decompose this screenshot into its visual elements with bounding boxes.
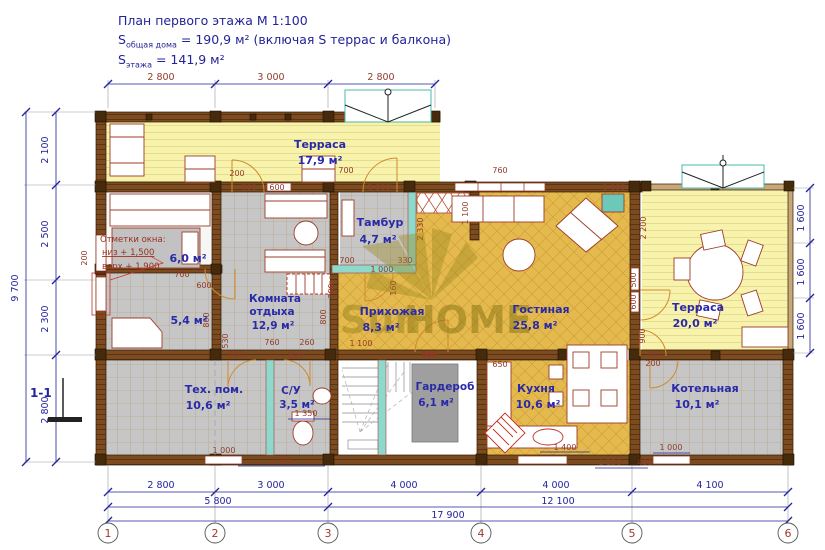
total-area-line: Sобщая дома = 190,9 м² (включая S террас… — [118, 31, 451, 52]
dim-1000-tech: 1 000 — [213, 446, 236, 455]
label-terrace-top: Терраса — [294, 138, 346, 151]
dim-left-3: 2 300 — [40, 305, 51, 332]
dim-bottom-3: 4 000 — [390, 480, 417, 491]
axis-label-2: 2 — [212, 527, 219, 540]
label-terrace-top-area: 17,9 м² — [298, 154, 343, 167]
dim-left-total: 9 700 — [10, 274, 21, 301]
dim-1900-wc: 1 900 — [270, 456, 293, 465]
dim-2000-living: 2 000 — [603, 183, 626, 192]
label-tambour-area: 4,7 м² — [359, 233, 396, 246]
plan-title: План первого этажа М 1:100 — [118, 12, 451, 31]
dim-bottom-5: 4 100 — [696, 480, 723, 491]
dim-bottom-1: 2 800 — [147, 480, 174, 491]
label-hallway-area: 8,3 м² — [362, 321, 399, 334]
title-block: План первого этажа М 1:100 Sобщая дома =… — [118, 12, 451, 72]
dim-top-2: 3 000 — [257, 72, 284, 83]
dim-700-tambour: 700 — [339, 256, 354, 265]
label-wardrobe-area: 6,1 м² — [418, 397, 454, 409]
dim-right-3: 1 600 — [796, 312, 807, 339]
axis-label-5: 5 — [629, 527, 636, 540]
dim-700-boiler: 700 — [646, 350, 661, 359]
dim-right-1: 1 600 — [796, 204, 807, 231]
label-lounge-1: Комната — [249, 293, 301, 305]
s-floor-prefix: S — [118, 52, 126, 67]
label-tech: Тех. пом. — [185, 383, 243, 396]
dim-1150: 1 150 — [599, 458, 622, 467]
label-wc-area: 3,5 м² — [279, 399, 315, 411]
window-note-line2: низ + 1,500 — [102, 248, 154, 258]
dim-530-lounge-left: 530 — [221, 333, 230, 348]
dim-bottom-2: 3 000 — [257, 480, 284, 491]
dim-800-tech: 800 — [228, 350, 243, 359]
dim-760-living: 760 — [492, 166, 507, 175]
dim-1100-vertical: 1 100 — [461, 202, 470, 225]
dim-600-wall: 600 — [629, 294, 638, 309]
label-hallway: Прихожая — [360, 305, 425, 318]
dim-700-room6: 700 — [174, 270, 189, 279]
dim-500-wall: 500 — [629, 272, 638, 287]
axis-label-3: 3 — [325, 527, 332, 540]
window-note-line1: Отметки окна: — [100, 235, 166, 245]
dim-760-lounge: 760 — [264, 338, 279, 347]
terrace-top-floor — [106, 122, 440, 182]
axis-bubbles: 1 2 3 4 5 6 — [98, 523, 798, 543]
floor-plan-drawing: 2 800 3 000 2 800 2 100 2 500 2 300 2 80… — [0, 0, 825, 550]
label-wardrobe: Гардероб — [416, 381, 475, 393]
dim-right-2: 1 600 — [796, 258, 807, 285]
label-kitchen-area: 10,6 м² — [516, 398, 561, 411]
label-lounge-area: 12,9 м² — [252, 320, 295, 332]
dim-900-wardrobe: 900 — [421, 350, 436, 359]
s-total-prefix: S — [118, 32, 126, 47]
label-boiler: Котельная — [671, 382, 738, 395]
dim-600-room6: 600 — [196, 281, 211, 290]
dim-780: 780 — [327, 283, 336, 298]
s-floor-sub: этажа — [126, 61, 152, 70]
dim-260-lounge: 260 — [299, 338, 314, 347]
dim-bottom-total: 17 900 — [431, 510, 464, 521]
dim-400: 400 — [637, 458, 652, 467]
dim-bottom-4: 4 000 — [542, 480, 569, 491]
label-tambour: Тамбур — [357, 216, 404, 229]
dim-900-door: 900 — [241, 183, 256, 192]
label-terrace-right-area: 20,0 м² — [673, 317, 718, 330]
dim-600-window: 600 — [269, 183, 284, 192]
dim-700-tambour-door: 700 — [338, 166, 353, 175]
floor-plan-page: 2 800 3 000 2 800 2 100 2 500 2 300 2 80… — [0, 0, 825, 550]
s-total-sub: общая дома — [126, 40, 177, 49]
s-total-value: = 190,9 м² (включая S террас и балкона) — [177, 32, 451, 47]
label-living: Гостиная — [512, 303, 569, 316]
axis-label-1: 1 — [105, 527, 112, 540]
label-room6-area: 6,0 м² — [169, 252, 206, 265]
axis-label-4: 4 — [478, 527, 485, 540]
dim-200-boiler: 200 — [645, 359, 660, 368]
label-living-area: 25,8 м² — [513, 319, 558, 332]
dim-800-wc: 800 — [288, 351, 303, 360]
label-tech-area: 10,6 м² — [186, 399, 231, 412]
dim-1000-boiler: 1 000 — [660, 443, 683, 452]
dim-1000-tambour-door: 1 000 — [368, 183, 391, 192]
dim-650-kitchen: 650 — [492, 360, 507, 369]
axis-label-6: 6 — [785, 527, 792, 540]
dim-2200-terrace: 2 200 — [639, 217, 648, 240]
dim-800-lounge-right: 800 — [319, 309, 328, 324]
floor-area-line: Sэтажа = 141,9 м² — [118, 51, 451, 72]
dim-bottom-5800: 5 800 — [204, 496, 231, 507]
dim-top-3: 2 800 — [367, 72, 394, 83]
s-floor-value: = 141,9 м² — [152, 52, 225, 67]
dim-900-wall: 900 — [638, 328, 647, 343]
dim-top-1: 2 800 — [147, 72, 174, 83]
section-mark-label: 1-1 — [30, 386, 52, 400]
label-room54-area: 5,4 м² — [170, 314, 207, 327]
label-wc: С/У — [281, 385, 301, 397]
label-lounge-2: отдыха — [249, 306, 294, 318]
label-terrace-right: Терраса — [672, 301, 724, 314]
dim-left-1: 2 100 — [40, 136, 51, 163]
label-boiler-area: 10,1 м² — [675, 398, 720, 411]
label-kitchen: Кухня — [517, 382, 555, 395]
dim-200-terrace: 200 — [229, 169, 244, 178]
dim-200-window: 200 — [80, 250, 89, 265]
dim-bottom-12100: 12 100 — [541, 496, 574, 507]
dim-1400-kitchen: 1 400 — [554, 443, 577, 452]
dim-left-2: 2 500 — [40, 220, 51, 247]
